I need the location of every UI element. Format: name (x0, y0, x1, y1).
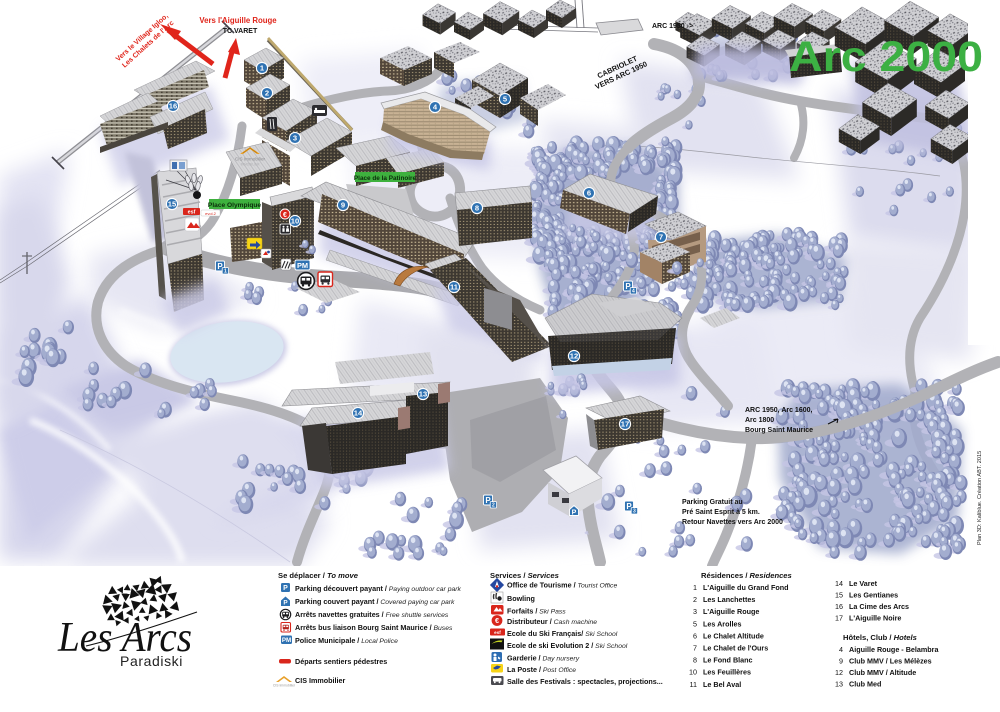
svg-text:3: 3 (293, 134, 297, 143)
svg-text:Pré Saint Esprit à 5 km.: Pré Saint Esprit à 5 km. (682, 509, 760, 516)
svg-text:€: € (495, 616, 499, 625)
svg-text:Garderie / Day nursery: Garderie / Day nursery (507, 654, 580, 663)
svg-text:Arrêts bus liaison Bourg Saint: Arrêts bus liaison Bourg Saint Maurice /… (295, 623, 453, 632)
svg-text:4: 4 (839, 645, 843, 654)
svg-text:9: 9 (839, 657, 843, 666)
svg-text:13: 13 (419, 390, 427, 399)
svg-text:Ecole de ski Evolution 2 / Ski: Ecole de ski Evolution 2 / Ski School (507, 641, 628, 650)
svg-text:evol.2: evol.2 (205, 211, 216, 216)
svg-text:10: 10 (689, 668, 697, 677)
svg-text:17: 17 (835, 614, 843, 623)
svg-text:2: 2 (693, 595, 697, 604)
svg-text:Services / Services: Services / Services (490, 571, 559, 580)
svg-text:6: 6 (587, 189, 591, 198)
svg-text:Salle des Festivals : spectacl: Salle des Festivals : spectacles, projec… (507, 677, 663, 686)
svg-text:7: 7 (693, 644, 697, 653)
svg-text:Le Chalet Altitude: Le Chalet Altitude (703, 631, 764, 640)
svg-text:10: 10 (291, 217, 299, 226)
svg-text:15: 15 (168, 200, 177, 209)
svg-text:Police Municipale / Local Poli: Police Municipale / Local Police (295, 636, 398, 645)
svg-text:CIS Immobilier: CIS Immobilier (235, 157, 266, 162)
svg-text:Aiguille Rouge - Belambra: Aiguille Rouge - Belambra (849, 645, 939, 654)
svg-text:Plan 3D: Kaliblue. Création AB: Plan 3D: Kaliblue. Création ABT. 2015 (977, 451, 983, 545)
svg-text:PM: PM (297, 261, 308, 270)
svg-text:Forfaits / Ski Pass: Forfaits / Ski Pass (507, 607, 566, 616)
svg-text:CIS Immobilier: CIS Immobilier (273, 684, 296, 688)
svg-text:Bourg Saint Maurice: Bourg Saint Maurice (745, 427, 813, 434)
svg-text:Arrêts navettes gratuites / Fr: Arrêts navettes gratuites / Free shuttle… (295, 610, 449, 619)
svg-text:2: 2 (492, 503, 495, 509)
svg-text:Place Olympique: Place Olympique (208, 202, 261, 209)
svg-text:Vers l'Aiguille Rouge: Vers l'Aiguille Rouge (199, 16, 277, 25)
svg-text:12: 12 (570, 352, 578, 361)
svg-text:Résidences / Residences: Résidences / Residences (701, 571, 792, 580)
svg-text:14: 14 (835, 579, 843, 588)
svg-text:8: 8 (475, 204, 479, 213)
svg-text:Parking couvert payant / Cover: Parking couvert payant / Covered paying … (295, 597, 455, 606)
svg-text:Les Arolles: Les Arolles (703, 619, 741, 628)
svg-text:P: P (283, 585, 288, 592)
svg-text:P: P (572, 509, 577, 516)
svg-text:La Poste / Post Office: La Poste / Post Office (507, 665, 576, 674)
svg-text:ARC 1950 ->: ARC 1950 -> (652, 23, 693, 30)
svg-text:Départs sentiers pédestres: Départs sentiers pédestres (295, 657, 387, 666)
svg-text:PM: PM (282, 637, 291, 644)
svg-text:Club MMV / Les Mélèzes: Club MMV / Les Mélèzes (849, 657, 932, 666)
svg-text:Les Lanchettes: Les Lanchettes (703, 595, 755, 604)
svg-text:1: 1 (693, 583, 697, 592)
svg-text:6: 6 (693, 631, 697, 640)
svg-text:Le Fond Blanc: Le Fond Blanc (703, 656, 753, 665)
svg-text:12: 12 (835, 668, 843, 677)
svg-text:Se déplacer / To move: Se déplacer / To move (278, 571, 359, 580)
svg-text:Le Chalet de l'Ours: Le Chalet de l'Ours (703, 644, 768, 653)
svg-text:Club Med: Club Med (849, 680, 881, 689)
svg-text:L'Aiguille du Grand Fond: L'Aiguille du Grand Fond (703, 583, 789, 592)
svg-text:CIS Immobilier: CIS Immobilier (295, 676, 346, 685)
svg-text:3: 3 (633, 509, 636, 515)
svg-text:ARC 1950, Arc 1600,: ARC 1950, Arc 1600, (745, 407, 813, 414)
svg-text:IMMOBILIER: IMMOBILIER (241, 163, 260, 167)
svg-text:Arc 1800: Arc 1800 (745, 417, 774, 424)
svg-text:15: 15 (835, 591, 843, 600)
svg-text:16: 16 (169, 102, 177, 111)
svg-text:P: P (283, 600, 288, 607)
svg-text:1: 1 (224, 269, 227, 275)
svg-text:Parking Gratuit au: Parking Gratuit au (682, 499, 743, 506)
svg-text:11: 11 (450, 283, 459, 292)
svg-text:17: 17 (621, 420, 629, 429)
svg-text:13: 13 (835, 680, 843, 689)
svg-text:Arc 2000: Arc 2000 (789, 33, 983, 81)
svg-text:esf: esf (494, 630, 501, 635)
svg-text:11: 11 (690, 680, 697, 689)
svg-text:L'Aiguille Rouge: L'Aiguille Rouge (703, 607, 759, 616)
svg-text:3: 3 (693, 607, 697, 616)
svg-text:Le Varet: Le Varet (849, 579, 878, 588)
svg-text:Ecole du Ski Français/ Ski Sch: Ecole du Ski Français/ Ski School (507, 629, 618, 638)
svg-text:Distributeur / Cash machine: Distributeur / Cash machine (507, 617, 597, 626)
svg-text:2: 2 (265, 89, 269, 98)
svg-text:16: 16 (835, 602, 843, 611)
svg-text:Office de Tourisme / Tourist O: Office de Tourisme / Tourist Office (507, 581, 617, 590)
svg-text:La Cime des Arcs: La Cime des Arcs (849, 602, 909, 611)
svg-text:€: € (283, 212, 287, 219)
svg-text:5: 5 (693, 619, 697, 628)
svg-text:4: 4 (632, 289, 635, 295)
svg-text:esf: esf (188, 210, 196, 216)
svg-text:Les Feuillères: Les Feuillères (703, 668, 751, 677)
svg-text:Place de la Patinoire: Place de la Patinoire (354, 175, 417, 182)
svg-text:8: 8 (693, 656, 697, 665)
svg-text:Club MMV / Altitude: Club MMV / Altitude (849, 668, 916, 677)
svg-text:L'Aiguille Noire: L'Aiguille Noire (849, 614, 901, 623)
svg-text:14: 14 (354, 409, 363, 418)
svg-text:Parking découvert payant / Pay: Parking découvert payant / Paying outdoo… (295, 584, 462, 593)
svg-text:Paradiski: Paradiski (120, 653, 183, 669)
svg-text:Le Bel Aval: Le Bel Aval (703, 680, 741, 689)
svg-text:Bowling: Bowling (507, 594, 535, 603)
svg-text:Hôtels, Club / Hotels: Hôtels, Club / Hotels (843, 633, 917, 642)
svg-text:Les Gentianes: Les Gentianes (849, 591, 898, 600)
svg-text:7: 7 (659, 233, 663, 242)
svg-text:TC VARET: TC VARET (223, 28, 258, 35)
svg-text:9: 9 (341, 201, 345, 210)
svg-text:Retour Navettes vers Arc 2000: Retour Navettes vers Arc 2000 (682, 519, 783, 526)
